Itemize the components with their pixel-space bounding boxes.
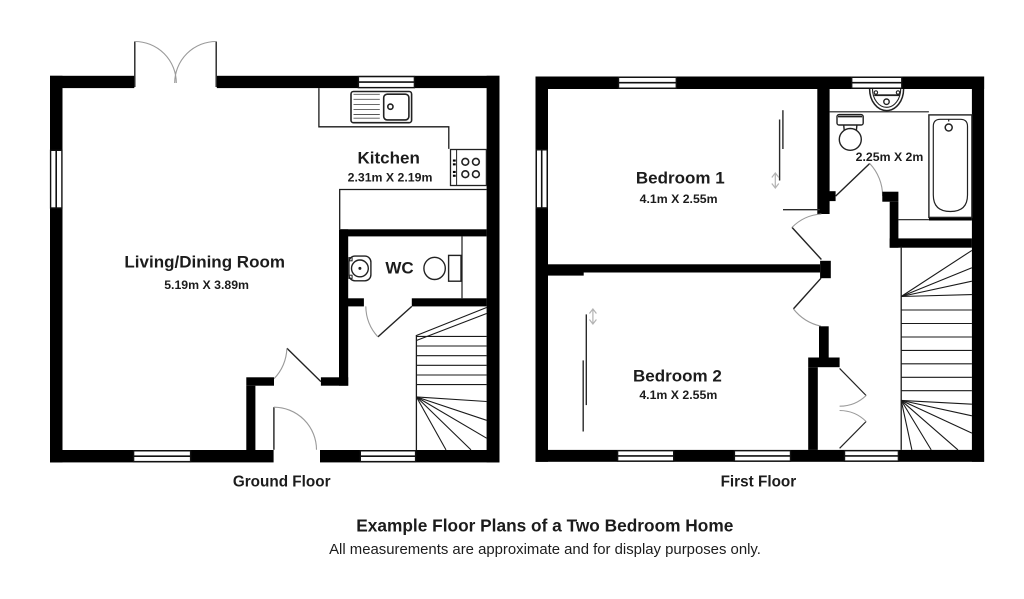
- svg-text:Living/Dining Room: Living/Dining Room: [124, 252, 285, 271]
- svg-text:All measurements are approxima: All measurements are approximate and for…: [329, 542, 761, 558]
- svg-text:2.31m X 2.19m: 2.31m X 2.19m: [348, 170, 433, 184]
- svg-text:Kitchen: Kitchen: [358, 149, 420, 168]
- svg-text:4.1m X 2.55m: 4.1m X 2.55m: [640, 192, 718, 206]
- svg-text:Ground Floor: Ground Floor: [233, 473, 331, 490]
- svg-text:Example Floor Plans of a Two B: Example Floor Plans of a Two Bedroom Hom…: [356, 515, 733, 535]
- svg-text:Bedroom 1: Bedroom 1: [636, 169, 725, 188]
- svg-text:5.19m X 3.89m: 5.19m X 3.89m: [164, 278, 249, 292]
- svg-text:First Floor: First Floor: [721, 473, 797, 490]
- svg-text:Bedroom 2: Bedroom 2: [633, 366, 722, 385]
- svg-text:2.25m X 2m: 2.25m X 2m: [856, 150, 924, 164]
- svg-text:WC: WC: [385, 258, 413, 277]
- svg-text:4.1m X 2.55m: 4.1m X 2.55m: [639, 388, 717, 402]
